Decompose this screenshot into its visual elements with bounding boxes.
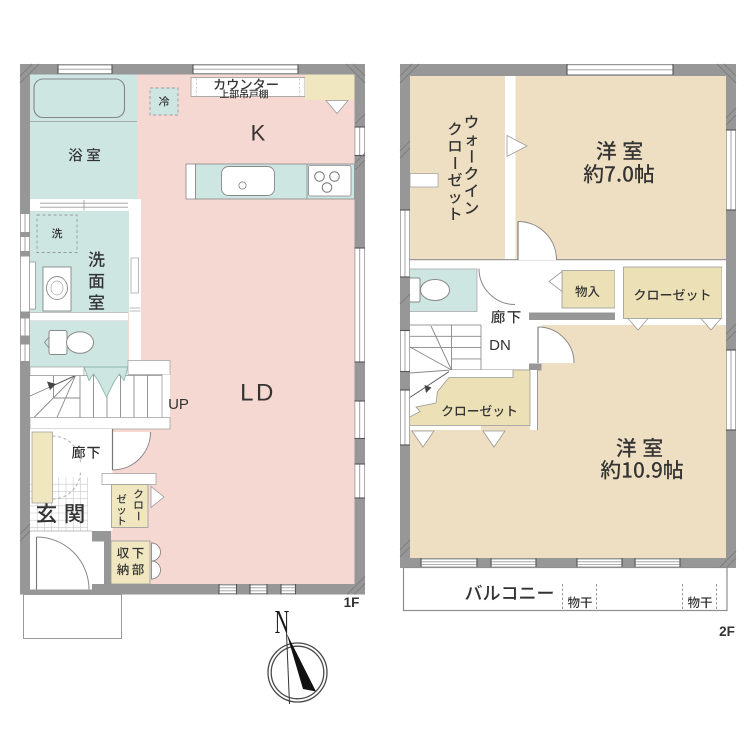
svg-text:N: N — [275, 604, 290, 642]
svg-text:K: K — [251, 121, 266, 146]
svg-text:LD: LD — [240, 379, 276, 406]
svg-text:DN: DN — [489, 337, 511, 354]
svg-text:1F: 1F — [344, 595, 360, 610]
svg-text:2F: 2F — [719, 624, 735, 639]
svg-text:UP: UP — [168, 396, 189, 413]
